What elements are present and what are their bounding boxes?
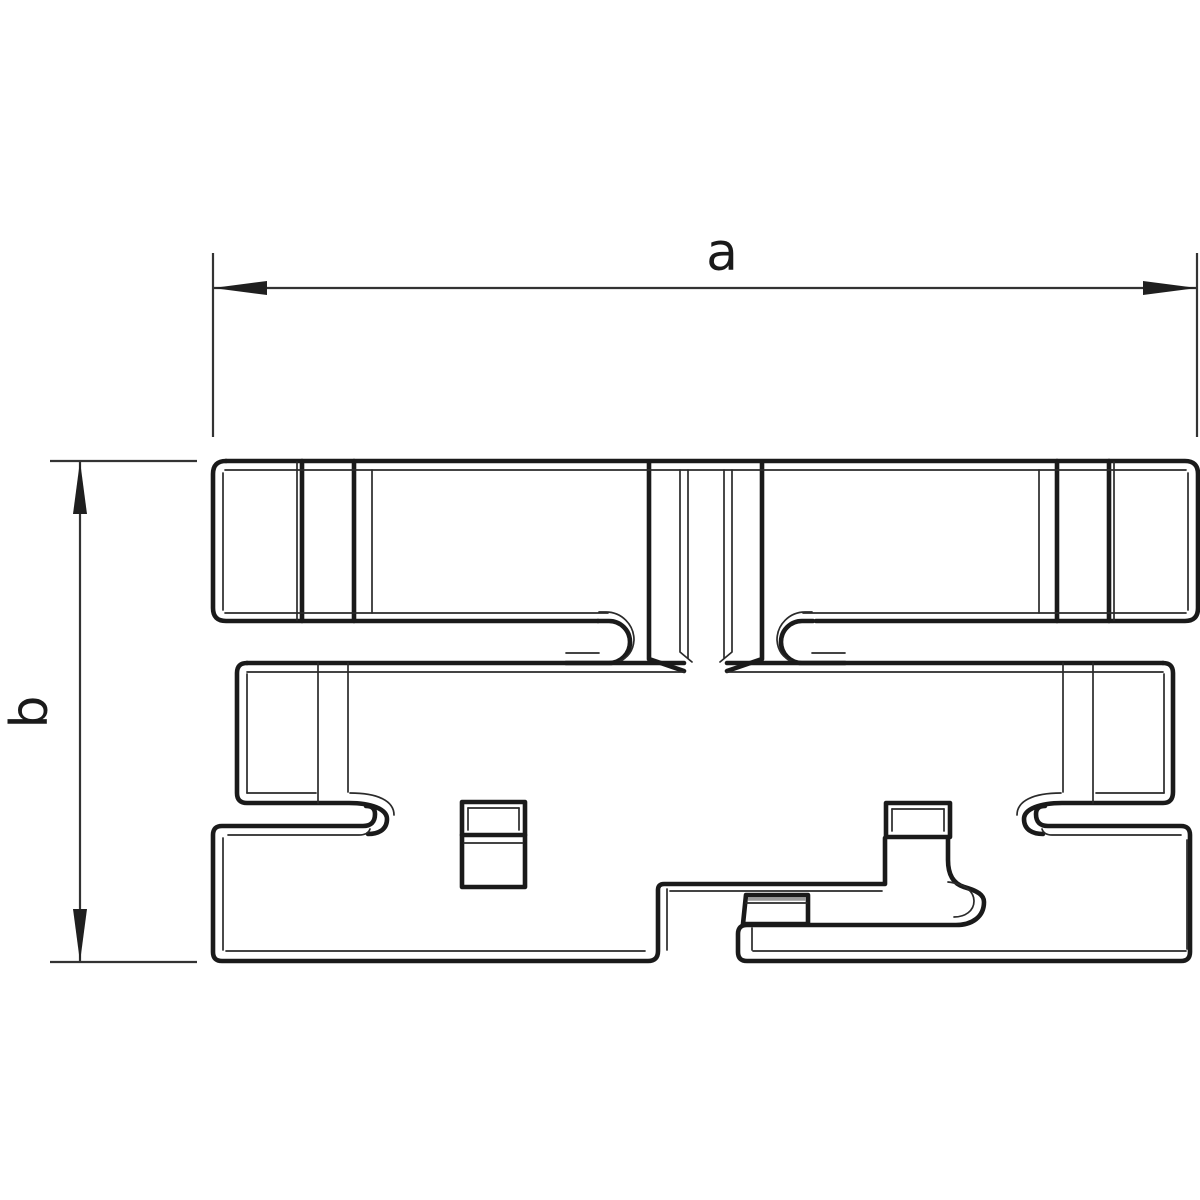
dimension-a-label: a <box>706 223 738 283</box>
center-tongue-right-a <box>720 470 732 662</box>
band-block-right-outline <box>1024 663 1173 834</box>
technical-drawing: a b <box>0 0 1200 1200</box>
center-tongue-left-a <box>680 470 692 662</box>
plate-right-inner-top <box>1042 829 1181 835</box>
dimension-a: a <box>213 223 1197 437</box>
dimension-b-arrow-top <box>73 461 87 514</box>
technical-drawing-page: a b <box>0 0 1200 1200</box>
tab-a-outline <box>462 802 525 887</box>
middle-band <box>237 663 1173 834</box>
rail-rolled-hook-right <box>781 621 845 663</box>
dimension-a-arrow-right <box>1143 281 1197 295</box>
dimension-b-label: b <box>0 695 60 728</box>
rail-rolled-hook-left <box>566 621 630 663</box>
dimension-b: b <box>0 461 197 962</box>
plate-left-inner-top <box>228 829 370 835</box>
top-rail <box>213 461 1198 671</box>
rail-center-edge-left <box>649 462 684 671</box>
dimension-a-arrow-left <box>213 281 267 295</box>
base-plate <box>213 806 1190 961</box>
band-block-left-outline <box>237 663 387 834</box>
dimension-b-arrow-bottom <box>73 909 87 962</box>
plate-left-outline <box>213 806 885 961</box>
tab-b-outline <box>886 803 950 837</box>
latch-tabs <box>462 802 950 924</box>
top-rail-outline-left <box>213 461 598 621</box>
